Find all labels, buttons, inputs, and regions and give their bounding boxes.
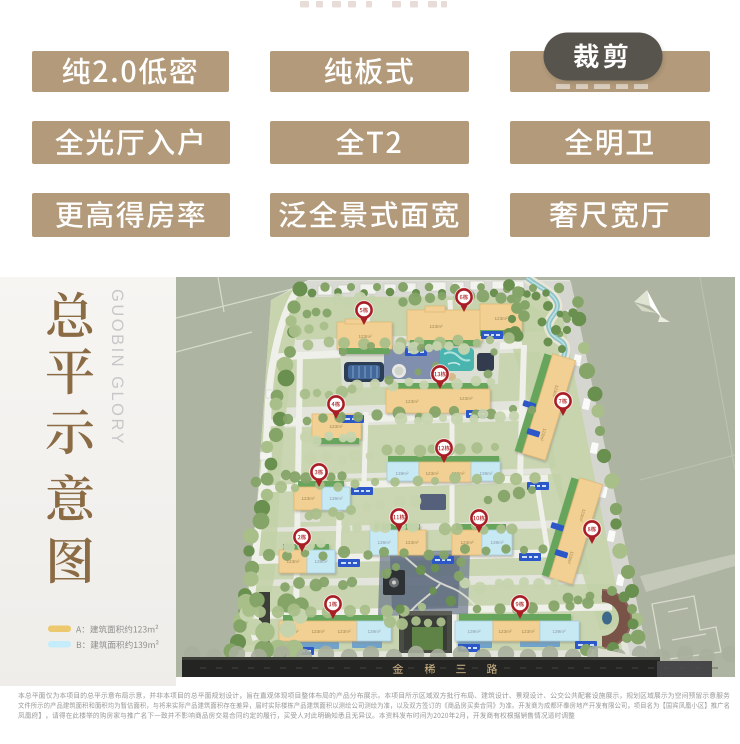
- svg-text:123m²: 123m²: [337, 629, 350, 634]
- svg-text:139m²: 139m²: [377, 540, 390, 545]
- svg-text:139m²: 139m²: [490, 540, 503, 545]
- svg-text:123m²: 123m²: [405, 540, 418, 545]
- svg-text:139m²: 139m²: [479, 471, 492, 476]
- svg-text:123m²: 123m²: [429, 324, 442, 329]
- svg-text:123m²: 123m²: [405, 399, 418, 404]
- svg-text:123m²: 123m²: [498, 629, 511, 634]
- svg-text:139m²: 139m²: [367, 629, 380, 634]
- svg-text:123m²: 123m²: [459, 396, 472, 401]
- svg-text:123m²: 123m²: [460, 540, 473, 545]
- svg-text:123m²: 123m²: [425, 471, 438, 476]
- svg-text:139m²: 139m²: [395, 471, 408, 476]
- svg-text:123m²: 123m²: [301, 496, 314, 501]
- svg-text:123m²: 123m²: [329, 424, 342, 429]
- svg-text:139m²: 139m²: [467, 629, 480, 634]
- svg-text:139m²: 139m²: [552, 629, 565, 634]
- svg-text:123m²: 123m²: [494, 316, 507, 321]
- svg-text:139m²: 139m²: [329, 496, 342, 501]
- svg-text:123m²: 123m²: [311, 629, 324, 634]
- svg-text:123m²: 123m²: [521, 629, 534, 634]
- svg-text:GUOBIN GLORY: GUOBIN GLORY: [108, 289, 126, 446]
